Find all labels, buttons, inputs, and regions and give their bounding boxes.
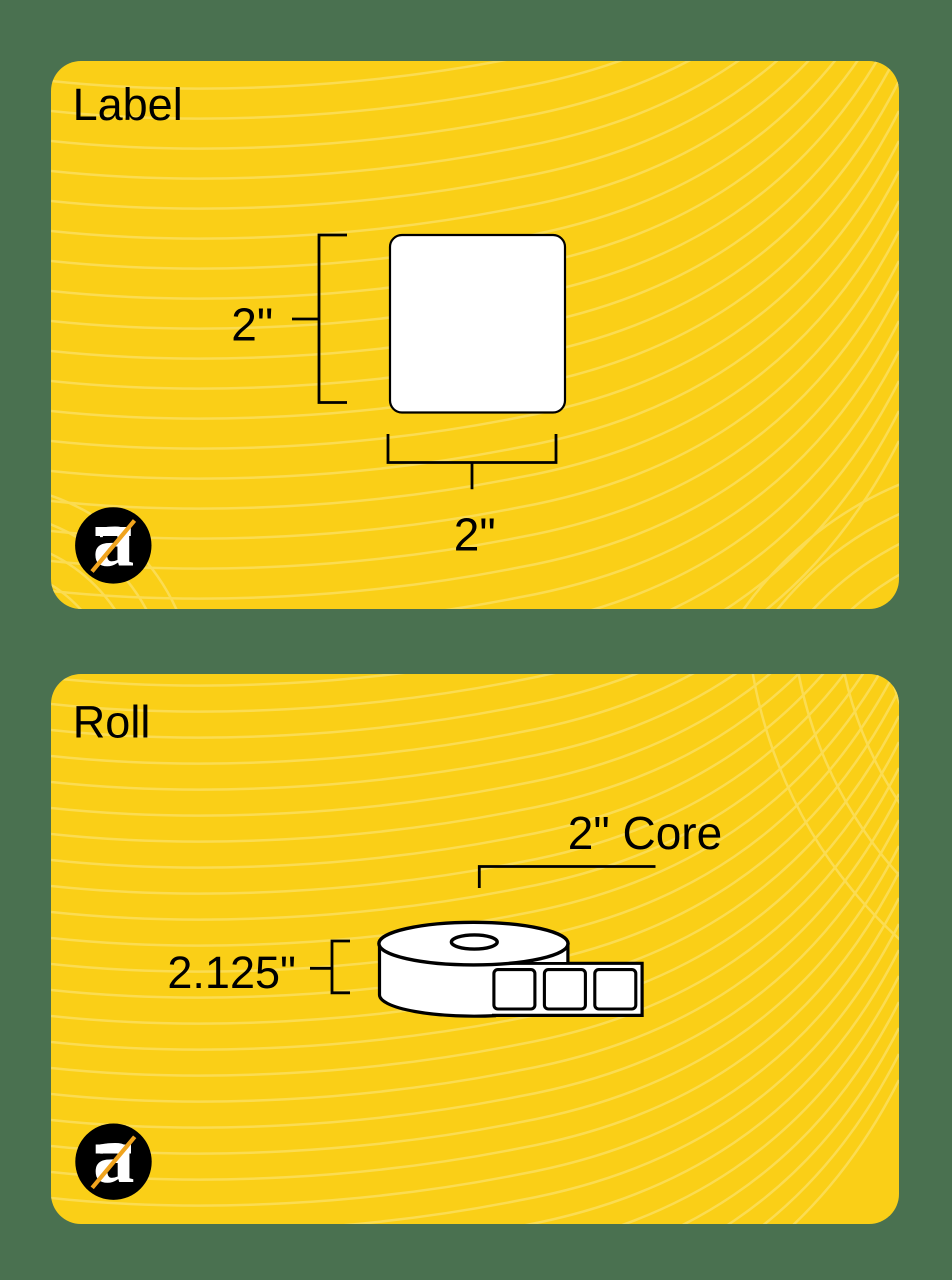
svg-text:2": 2" (454, 509, 496, 561)
svg-text:a: a (93, 1108, 135, 1200)
svg-text:2" Core: 2" Core (568, 807, 722, 859)
svg-text:2": 2" (231, 299, 273, 351)
svg-text:a: a (93, 492, 135, 584)
svg-text:Label: Label (73, 79, 183, 130)
svg-text:2.125": 2.125" (167, 947, 296, 998)
svg-text:Roll: Roll (73, 697, 151, 748)
